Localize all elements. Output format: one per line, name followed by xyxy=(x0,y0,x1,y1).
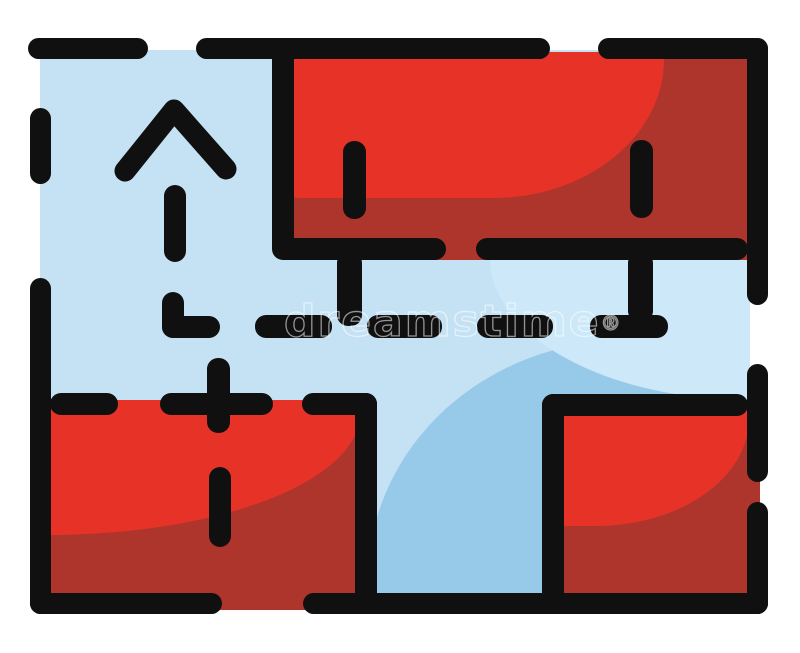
wall-plus-marker-vertical xyxy=(207,358,230,433)
wall-bl-room-inner-dash xyxy=(209,467,231,547)
floor-plan-illustration: dreamstime® xyxy=(0,0,800,653)
stock-watermark: dreamstime® xyxy=(284,296,623,347)
wall-top-room-left xyxy=(272,48,294,258)
wall-br-room-left xyxy=(542,394,564,614)
room-bottom-left xyxy=(48,400,368,610)
wall-left-upper-dash xyxy=(30,108,51,184)
wall-top-room-inner-dash-left xyxy=(343,141,366,219)
wall-br-room-top xyxy=(542,394,748,416)
room-bottom-left-highlight xyxy=(48,400,360,535)
room-bottom-right-highlight xyxy=(552,404,749,526)
wall-right-middle-segment xyxy=(747,364,768,482)
wall-stub-right xyxy=(628,252,653,322)
wall-left-lower-segment xyxy=(30,278,51,614)
wall-right-upper-segment xyxy=(747,38,768,305)
wall-top-left-segment xyxy=(28,38,148,59)
route-elbow-horizontal xyxy=(162,316,220,338)
wall-bl-room-right xyxy=(355,393,377,614)
wall-top-room-bottom-right xyxy=(476,238,748,260)
wall-top-room-inner-dash-right xyxy=(630,140,653,218)
wall-top-middle-segment xyxy=(196,38,550,59)
wall-bl-room-top-a xyxy=(50,393,118,415)
wall-top-right-segment xyxy=(598,38,768,59)
up-arrow-icon xyxy=(105,95,245,190)
watermark-registered-mark: ® xyxy=(601,311,623,335)
room-top-right-highlight xyxy=(284,52,664,198)
room-bottom-right xyxy=(552,404,760,605)
wall-bottom-left-segment xyxy=(30,593,222,614)
up-arrow-shaft xyxy=(164,185,186,262)
watermark-text: dreamstime xyxy=(284,296,601,347)
